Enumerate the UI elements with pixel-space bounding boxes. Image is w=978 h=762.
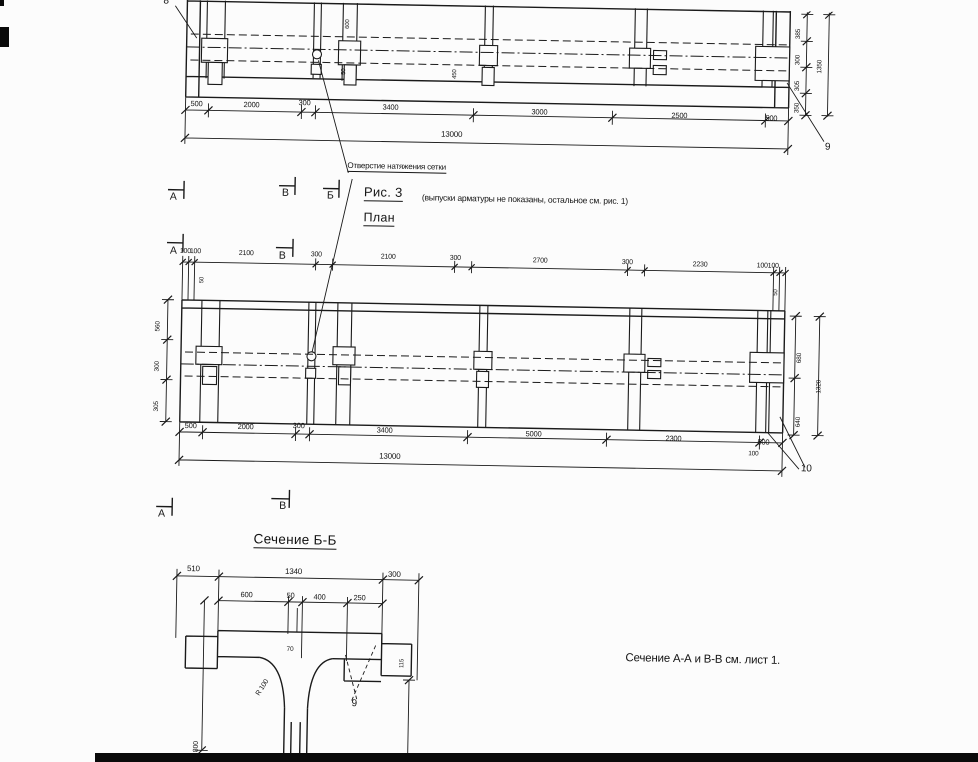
scan-edge-band-bottom [95,753,978,762]
mark-B-elevation: Б [327,191,334,202]
plan-dim-right-total: 1320 [816,380,823,394]
plan-dim-small: 100 [748,451,758,458]
plan-dim-bottom: 500 [185,422,197,430]
sec-dim: 600 [240,591,252,599]
scan-blob-corner [0,0,4,6]
scanned-drawing-page: Отверстие натяжения сеткиРис. 3(выпуски … [0,0,978,762]
elev-dim: 3400 [382,104,398,112]
section-mark-lines-elevation [168,175,339,202]
sec-dim-rot: 800 [193,741,201,752]
plan-dim-top: 100 [757,262,768,270]
mark-A-plan-top: А [170,246,177,257]
pos-8: 8 [163,0,169,7]
section-mark-lines-plan [156,233,294,517]
elev-dim-rot: 385 [796,29,803,39]
section-title: Сечение Б-Б [253,532,336,550]
plan-dim-top: 100 [768,263,779,271]
plan-dim-left: 300 [155,361,162,371]
mark-A-elevation: А [170,192,177,203]
plan-dim-right: 640 [796,417,803,427]
mark-A-plan-bottom: А [158,508,165,519]
hole-callout: Отверстие натяжения сетки [347,162,446,174]
plan-dim-rot: 50 [199,277,205,283]
sec-dim: 1340 [285,568,302,577]
sec-dim: 70 [287,647,294,654]
pos-9-elevation: 9 [825,143,831,154]
plan-dim-bottom: 5000 [525,430,541,438]
elev-dim: 300 [299,99,311,107]
pos-10-plan: 10 [801,464,812,475]
elev-dim-rot: 305 [795,81,802,91]
plan-dim-rot: 50 [773,289,779,295]
sec-dim-rot: 115 [399,659,405,668]
figure-caption: Рис. 3 [364,185,403,201]
drawing-sheet: Отверстие натяжения сеткиРис. 3(выпуски … [0,0,978,762]
mark-V-elevation: В [282,188,289,199]
elev-dim-rot: 450 [452,69,458,79]
section-view [170,569,423,762]
plan-dim-top: 2100 [381,254,396,262]
elev-dim-rot: 50 [341,68,347,74]
leader-line-section [345,645,376,704]
plan-title: План [363,211,395,227]
plan-dim-top: 300 [622,259,633,267]
mark-V-plan-bottom: В [279,501,286,512]
plan-dim-total: 13000 [379,453,400,462]
plan-dim-top: 2700 [533,257,548,265]
elev-dim-total: 13000 [441,131,462,140]
plan-dim-right: 680 [797,353,804,363]
plan-dim-top: 300 [450,255,461,263]
pos-9-section: 9 [351,699,357,710]
sec-dim: 400 [313,593,325,601]
plan-dim-bottom: 2000 [238,423,254,431]
drawing-linework [0,0,978,762]
plan-dim-top: 100 [190,248,201,256]
elev-dim: 2000 [243,101,259,109]
sec-dim: 250 [353,594,365,602]
sec-dim: 50 [286,592,294,600]
plan-dim-bottom: 500 [757,438,769,446]
elev-dim: 500 [765,115,777,123]
plan-dim-top: 300 [311,251,322,259]
plan-dim-bottom: 2300 [665,435,681,443]
plan-dim-top: 2100 [239,250,254,258]
scan-blob-left [0,27,9,47]
plan-dim-bottom: 3400 [377,426,393,434]
plan-dim-top: 2230 [693,261,708,269]
mark-V-plan-top: В [279,251,286,262]
plan-dim-left: 560 [155,321,162,331]
plan-dim-left: 305 [154,401,161,411]
elev-dim-rot: 350 [794,103,801,113]
plan-view [156,233,827,527]
sec-dim: 300 [388,571,401,580]
elevation-view [165,0,835,362]
elev-dim-rot: 300 [795,55,802,65]
elev-dim-rot: 600 [345,19,351,29]
elev-dim: 3000 [531,108,547,116]
plan-dim-bottom: 300 [293,422,305,430]
elev-dim: 500 [190,100,202,108]
sec-dim: 510 [187,565,200,574]
elev-dim-rot-total: 1350 [817,60,824,74]
elev-dim: 2500 [671,112,687,120]
